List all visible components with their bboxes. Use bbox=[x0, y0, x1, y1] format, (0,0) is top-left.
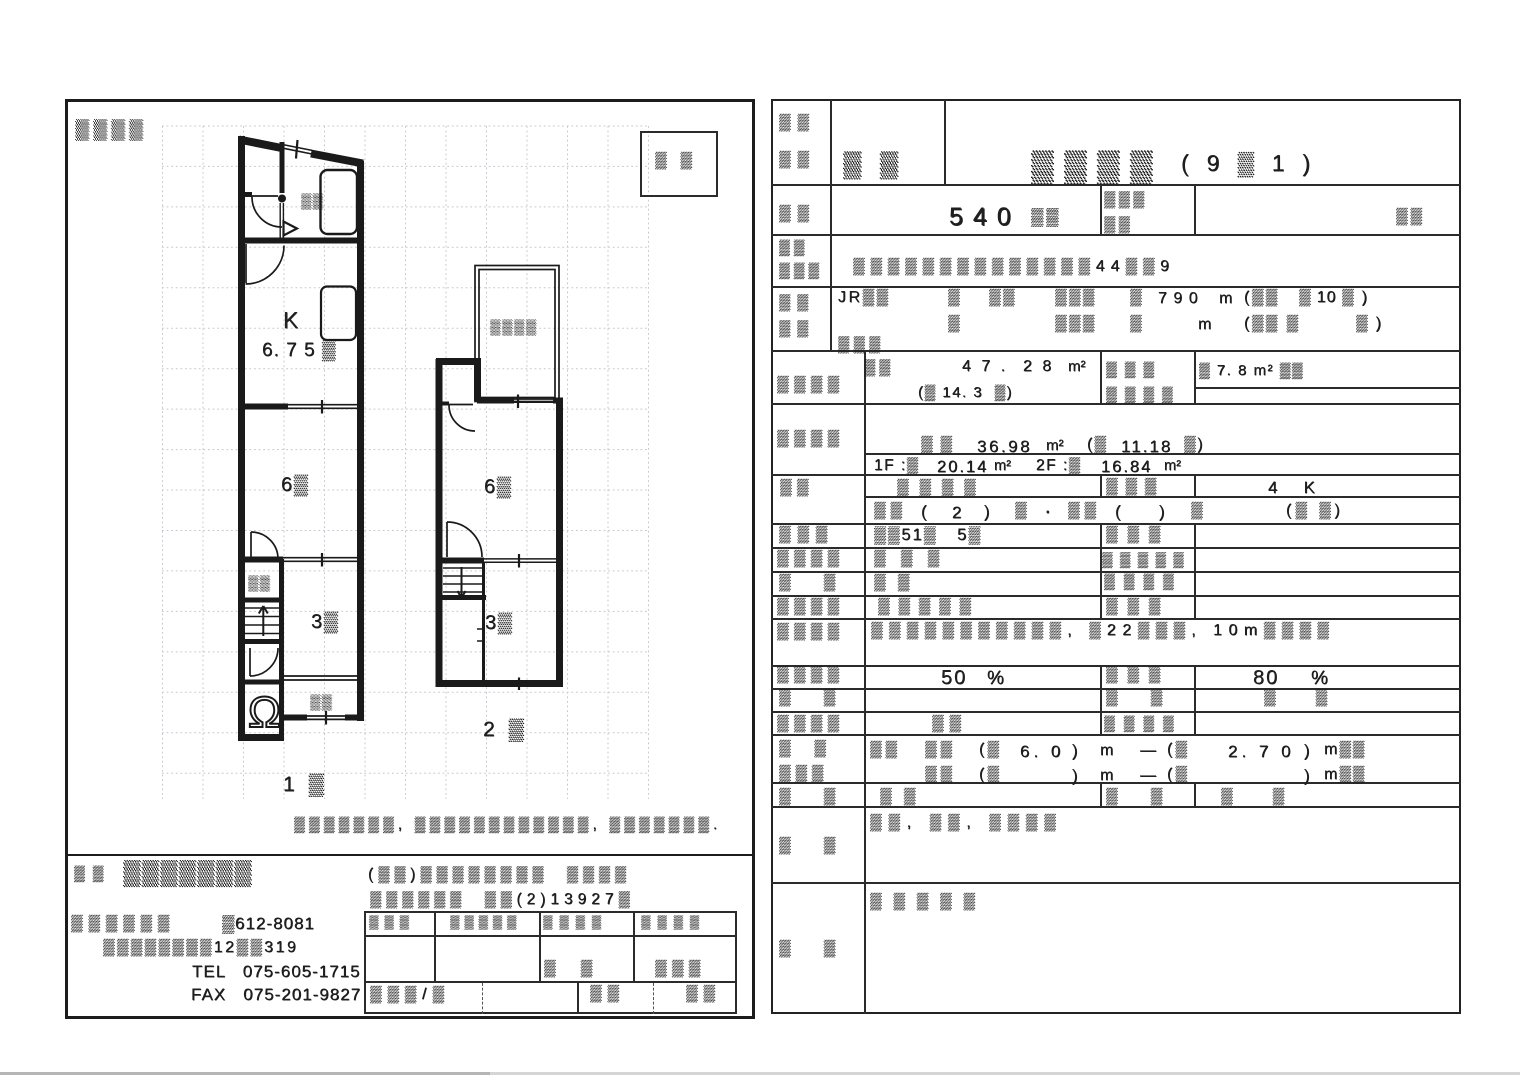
svg-text:Ω: Ω bbox=[248, 688, 281, 737]
